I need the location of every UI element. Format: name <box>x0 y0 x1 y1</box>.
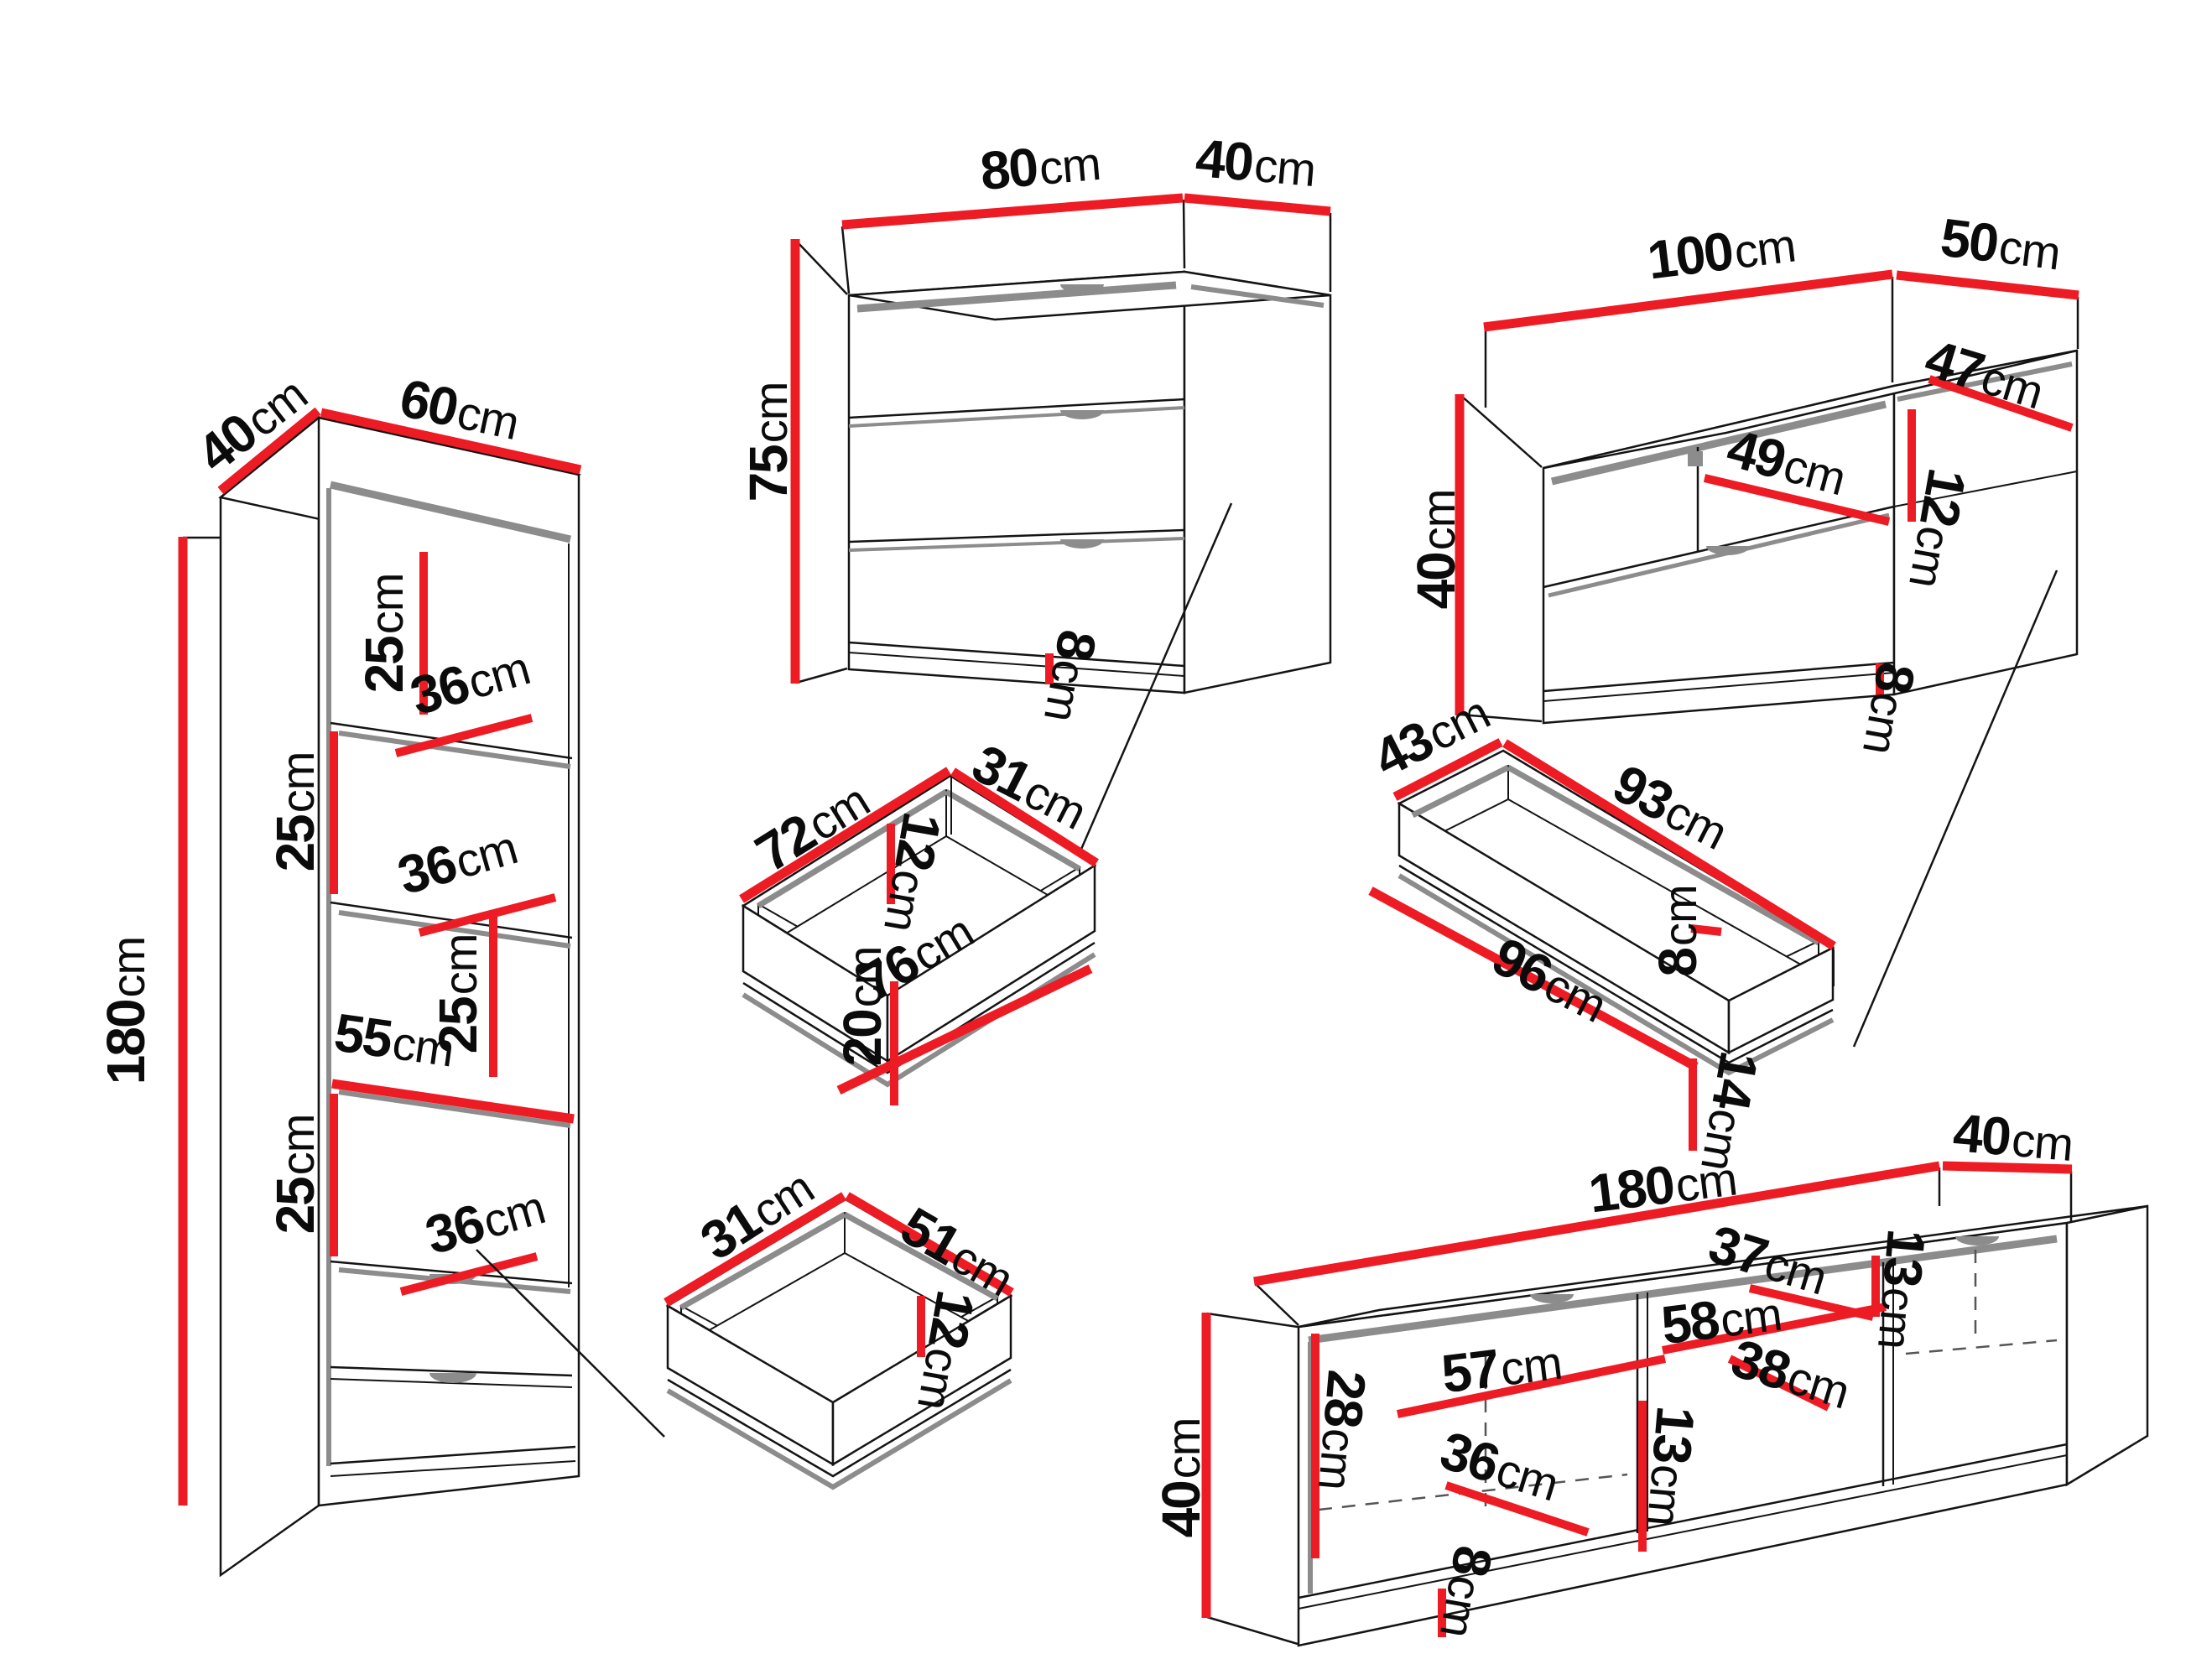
dim-tick <box>796 241 847 294</box>
tv-large-side <box>2067 1206 2147 1485</box>
dim-tick <box>842 226 849 294</box>
drawer-chest-box <box>742 771 1096 1105</box>
dim-tick <box>1207 1313 1298 1327</box>
bookcase-side-panel <box>221 418 319 1575</box>
inner-height-dim-red <box>1691 928 1721 932</box>
diagram-linework <box>0 0 2212 1659</box>
depth-dim-line-red <box>1897 275 2079 295</box>
bookcase <box>183 411 580 1575</box>
bookcase-front <box>319 418 579 1506</box>
dim-tick <box>796 668 847 683</box>
depth-dim-line-red <box>1184 198 1330 211</box>
chest-side <box>1184 272 1330 693</box>
chest-front <box>849 272 1184 693</box>
dim-tick <box>1255 1283 1299 1325</box>
width-dim-line-red <box>1484 274 1892 327</box>
dim-tick <box>1460 715 1542 721</box>
dim-tick <box>1460 395 1542 467</box>
tv-small <box>1460 274 2079 723</box>
furniture-dimensions-diagram: 40cm 60cm 180cm 25cm 36cm 25cm 36cm 25cm… <box>0 0 2212 1659</box>
tv-large <box>1206 1166 2147 1646</box>
dim-tick <box>1184 200 1184 268</box>
drawer-tv-small-box <box>1371 742 1834 1151</box>
dim-tick <box>1207 1617 1298 1644</box>
depth-dim-line-red <box>1943 1166 2072 1169</box>
width-dim-line-red <box>842 198 1183 225</box>
tv-small-handle-square <box>1688 451 1703 466</box>
chest <box>795 198 1330 693</box>
drawer-bookcase-box <box>666 1196 1012 1487</box>
